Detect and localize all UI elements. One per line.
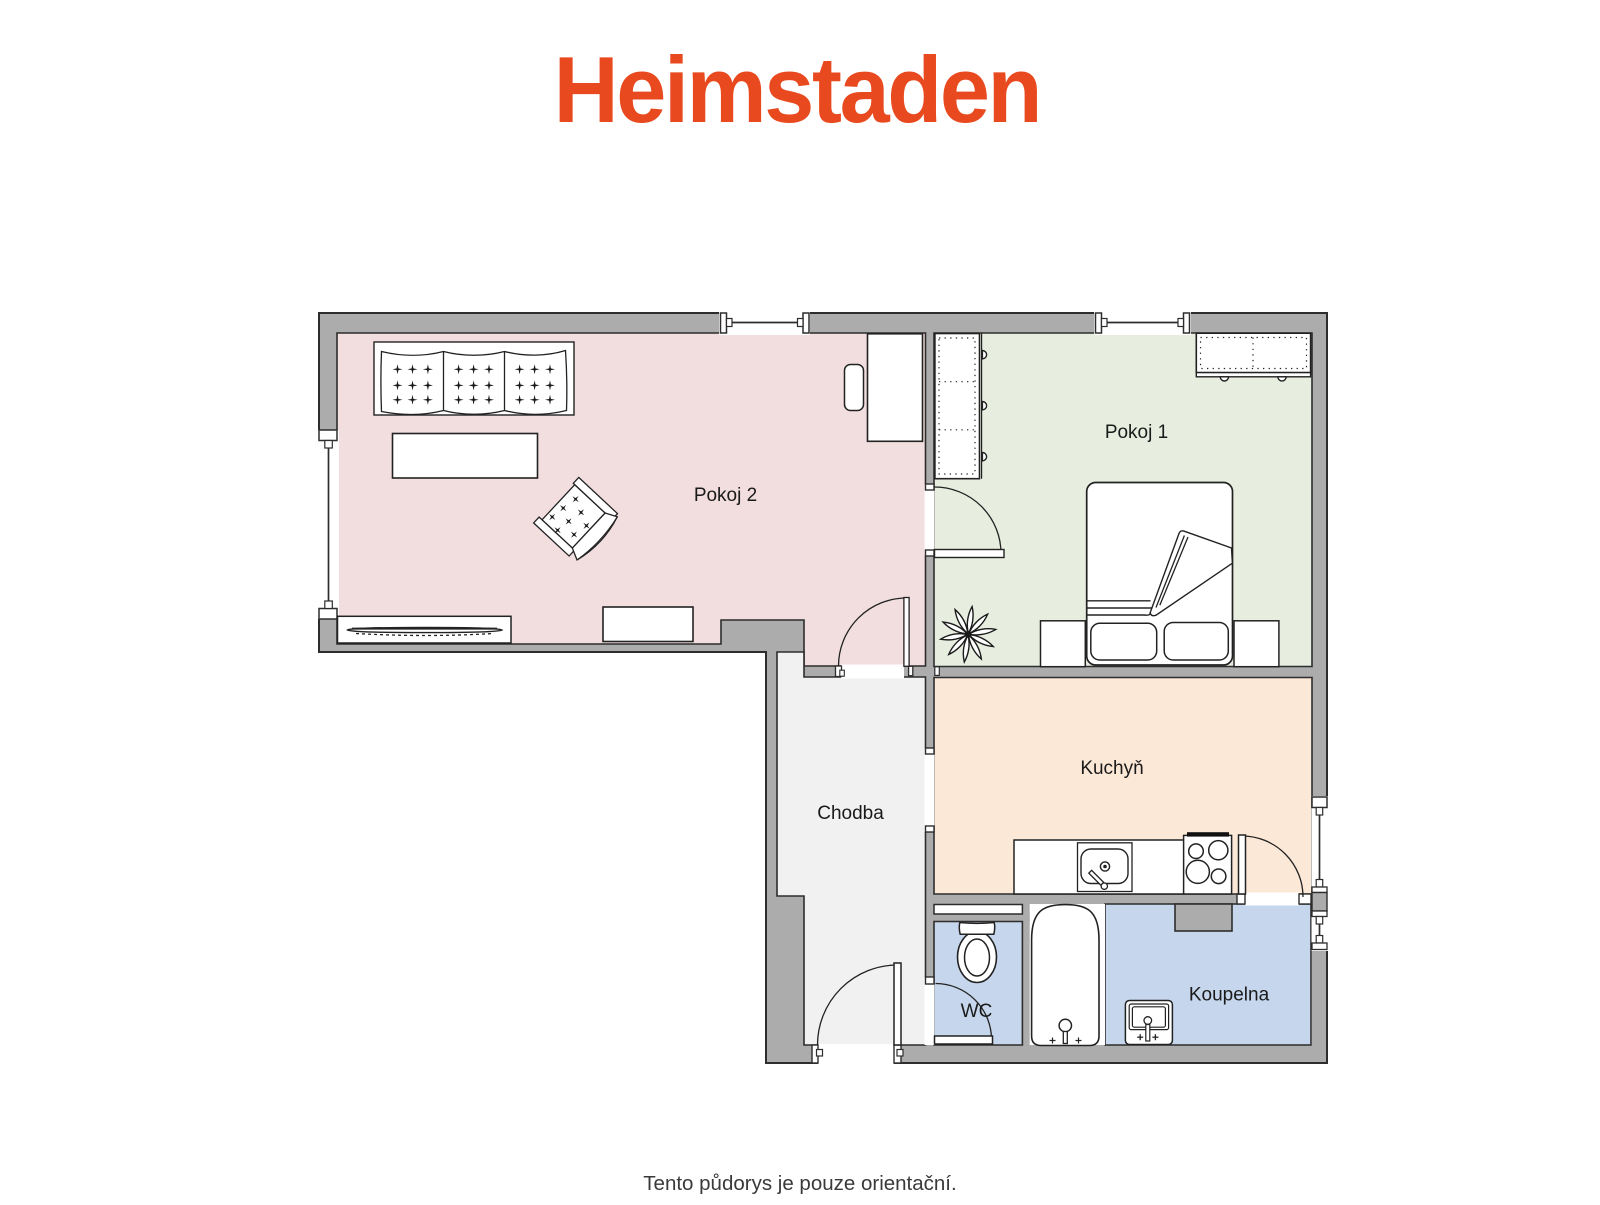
svg-text:Kuchyň: Kuchyň: [1080, 758, 1143, 779]
svg-text:Koupelna: Koupelna: [1189, 985, 1270, 1006]
svg-text:Pokoj 1: Pokoj 1: [1105, 422, 1168, 443]
svg-text:Chodba: Chodba: [817, 803, 884, 824]
svg-text:Pokoj 2: Pokoj 2: [694, 485, 757, 506]
svg-text:WC: WC: [961, 1001, 993, 1022]
